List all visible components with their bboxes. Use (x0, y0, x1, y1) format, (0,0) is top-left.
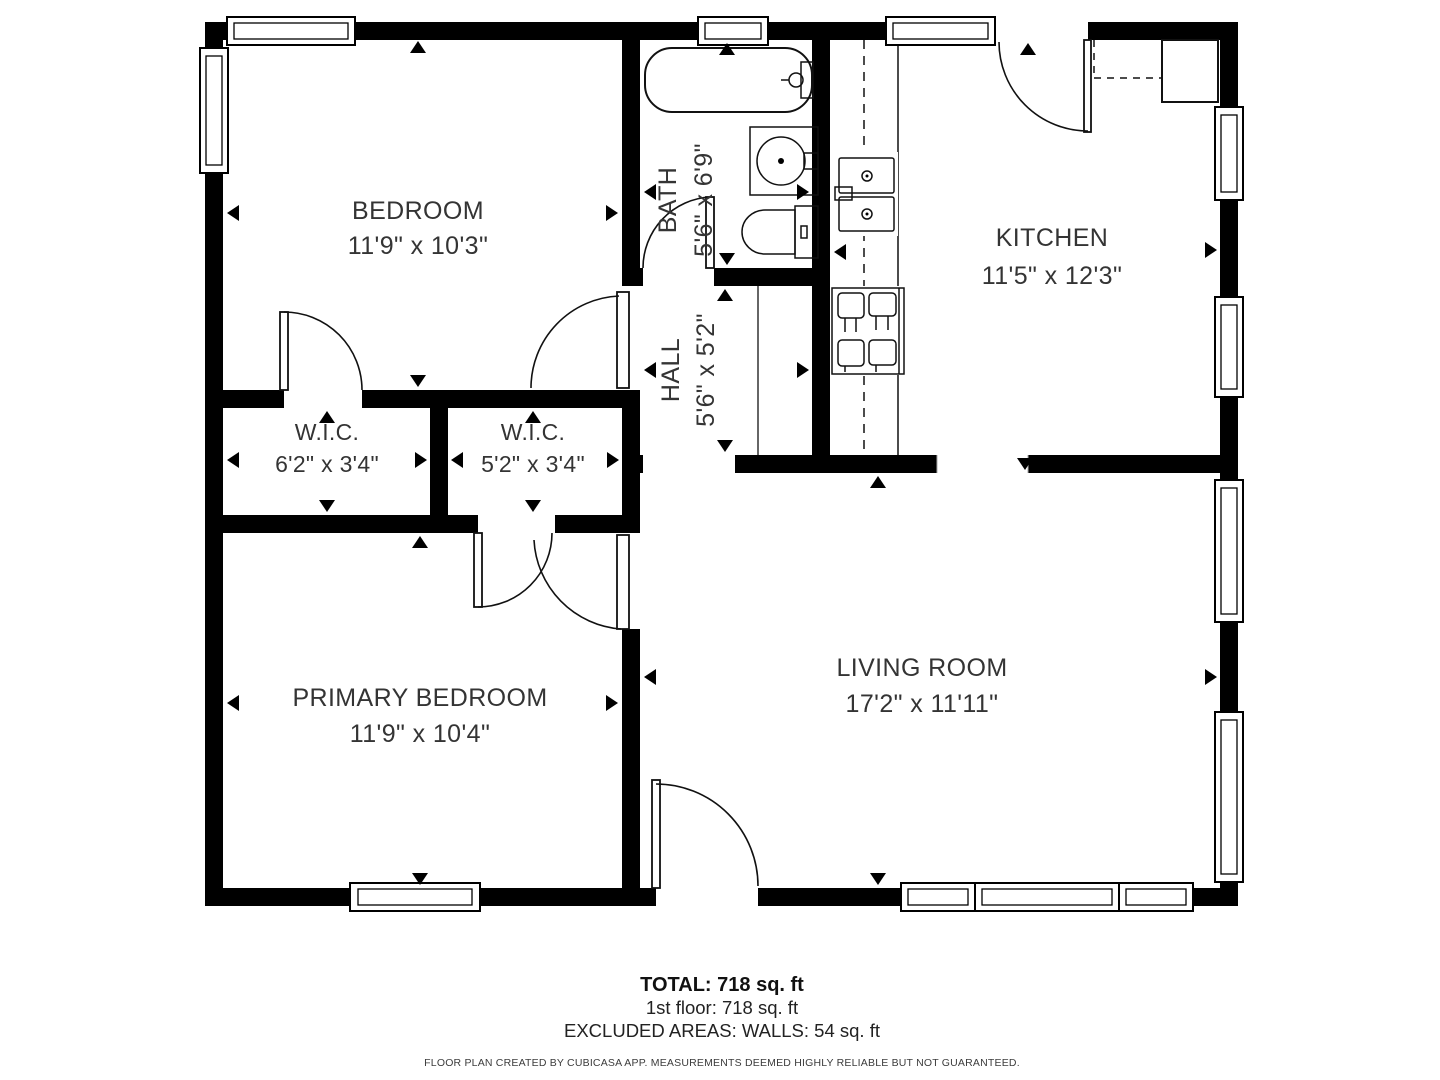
primary-bedroom-dims: 11'9" x 10'4" (350, 720, 490, 748)
window-kitchen-top (886, 17, 995, 45)
bath-dims: 5'6" x 6'9" (690, 143, 718, 257)
hall-label: HALL (657, 338, 685, 402)
wic-right-dims: 5'2" x 3'4" (481, 451, 585, 477)
disclaimer-text: FLOOR PLAN CREATED BY CUBICASA APP. MEAS… (424, 1057, 1020, 1069)
window-bedroom-top (227, 17, 355, 45)
opening-bath-door (643, 268, 714, 286)
bedroom-dims: 11'9" x 10'3" (348, 232, 488, 260)
opening-kitchen-living (937, 455, 1028, 473)
bath-label: BATH (654, 167, 682, 233)
wall-bedroom-wic (205, 390, 640, 408)
window-living-bottom (901, 883, 1193, 911)
door-kitchen-entry (999, 40, 1091, 132)
bedroom-label: BEDROOM (352, 197, 484, 225)
excluded-area-text: EXCLUDED AREAS: WALLS: 54 sq. ft (564, 1020, 880, 1041)
fridge-icon (1162, 40, 1218, 102)
window-living-right-1 (1215, 480, 1243, 622)
upper-cabinet-icon (1094, 40, 1162, 78)
wic-right-label: W.I.C. (501, 419, 565, 445)
kitchen-counter (864, 40, 898, 455)
opening-wic-left-door (284, 390, 362, 408)
living-room-label: LIVING ROOM (836, 654, 1007, 682)
total-area-text: TOTAL: 718 sq. ft (640, 974, 804, 996)
wall-bath-kitchen (812, 40, 830, 473)
window-kitchen-right-1 (1215, 107, 1243, 200)
window-bath-top (698, 17, 768, 45)
room-labels: BEDROOM 11'9" x 10'3" BATH 5'6" x 6'9" K… (275, 143, 1122, 748)
kitchen-sink-icon (834, 152, 898, 236)
wall-between-wics (430, 408, 448, 515)
opening-front-door (656, 888, 758, 906)
primary-bedroom-label: PRIMARY BEDROOM (292, 684, 547, 712)
bathtub-icon (645, 48, 813, 112)
toilet-icon (742, 206, 818, 258)
wic-left-label: W.I.C. (295, 419, 359, 445)
hall-dims: 5'6" x 5'2" (692, 313, 720, 427)
kitchen-label: KITCHEN (996, 224, 1109, 252)
floor-plan: BEDROOM 11'9" x 10'3" BATH 5'6" x 6'9" K… (0, 0, 1440, 1080)
window-bedroom-left (200, 48, 228, 173)
kitchen-dims: 11'5" x 12'3" (982, 262, 1122, 290)
opening-wic-right-door (478, 515, 555, 533)
wall-openings (284, 22, 1088, 906)
door-wic-left (280, 312, 362, 390)
window-primary-bottom (350, 883, 480, 911)
wic-left-dims: 6'2" x 3'4" (275, 451, 379, 477)
opening-kitchen-entry (995, 22, 1088, 40)
door-primary-bedroom (534, 535, 629, 629)
kitchen-fixtures (830, 40, 1218, 375)
footer: TOTAL: 718 sq. ft 1st floor: 718 sq. ft … (424, 974, 1020, 1069)
opening-hall-living (643, 455, 735, 473)
bathroom-sink-icon (750, 127, 818, 195)
door-front (652, 780, 758, 888)
door-bedroom-hall (531, 292, 629, 388)
floor-plan-page: BEDROOM 11'9" x 10'3" BATH 5'6" x 6'9" K… (0, 0, 1440, 1080)
dimension-arrows-kitchen (834, 43, 1217, 470)
window-living-right-2 (1215, 712, 1243, 882)
stove-icon (830, 286, 907, 375)
window-kitchen-right-2 (1215, 297, 1243, 397)
floor-area-text: 1st floor: 718 sq. ft (646, 997, 798, 1018)
living-room-dims: 17'2" x 11'11" (846, 690, 999, 718)
wall-wic-primary (205, 515, 640, 533)
